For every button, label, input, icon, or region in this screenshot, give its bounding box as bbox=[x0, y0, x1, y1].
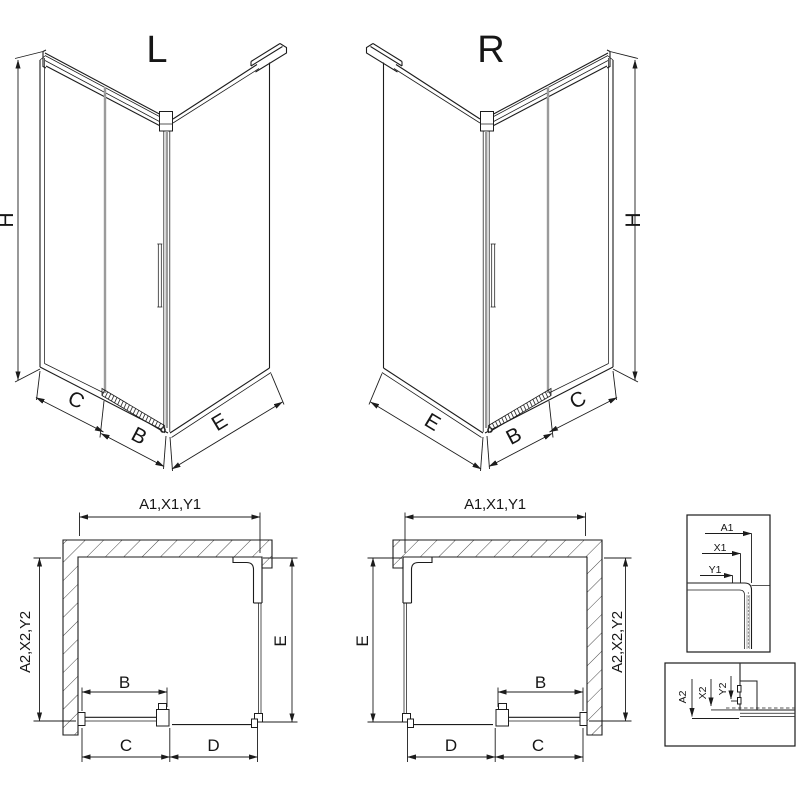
plan-left-dim-door: B bbox=[119, 673, 130, 692]
detail-floor-frame bbox=[665, 663, 795, 746]
plan-left-dim-side: A2,X2,Y2 bbox=[17, 611, 34, 673]
dim-label-e-right: E bbox=[420, 409, 444, 436]
plan-right-dim-top: A1,X1,Y1 bbox=[464, 496, 526, 513]
technical-drawing-page: L H C B E R H E B C A1,X1,Y1 A2,X2,Y2 E … bbox=[0, 0, 800, 800]
detail-dim-y1: Y1 bbox=[709, 564, 722, 576]
dim-label-e-left: E bbox=[208, 409, 232, 436]
detail-wall-profile: A1 X1 Y1 bbox=[687, 515, 770, 652]
dim-label-c-left: C bbox=[64, 387, 88, 414]
dim-label-h-left: H bbox=[0, 212, 18, 227]
wall-hatch-right-plan bbox=[393, 540, 602, 735]
iso-view-right: R H E B C bbox=[367, 29, 646, 471]
dim-label-b-right: B bbox=[502, 423, 525, 450]
detail-dim-x2: X2 bbox=[697, 686, 709, 699]
iso-right-title: R bbox=[477, 29, 504, 71]
plan-right-dim-d: D bbox=[445, 736, 457, 755]
detail-dim-x1: X1 bbox=[714, 542, 727, 554]
detail-dim-a2: A2 bbox=[677, 690, 689, 703]
plan-right-dim-depth: E bbox=[353, 635, 372, 646]
plan-right-dim-door: B bbox=[535, 673, 546, 692]
plan-right-dim-c: C bbox=[532, 736, 544, 755]
detail-floor-profile: A2 X2 Y2 bbox=[665, 663, 795, 746]
plan-left-dim-d: D bbox=[207, 736, 219, 755]
plan-view-right: A1,X1,Y1 A2,X2,Y2 E B D C bbox=[353, 496, 632, 762]
plan-view-left: A1,X1,Y1 A2,X2,Y2 E B C D bbox=[17, 496, 298, 762]
shower-enclosure-drawing: L H C B E R H E B C A1,X1,Y1 A2,X2,Y2 E … bbox=[0, 0, 800, 800]
iso-left-linework bbox=[15, 44, 287, 472]
detail-dim-y2: Y2 bbox=[717, 682, 729, 695]
plan-left-dim-depth: E bbox=[271, 635, 290, 646]
dim-label-b-left: B bbox=[127, 423, 150, 450]
plan-right-dim-side: A2,X2,Y2 bbox=[609, 611, 626, 673]
dim-label-c-right: C bbox=[566, 387, 590, 414]
iso-view-left: L H C B E bbox=[0, 29, 287, 471]
iso-right-linework bbox=[367, 44, 639, 472]
detail-dim-a1: A1 bbox=[721, 522, 734, 534]
iso-left-title: L bbox=[146, 29, 167, 71]
wall-hatch-left-plan bbox=[63, 540, 272, 735]
plan-left-dim-c: C bbox=[120, 736, 132, 755]
dim-label-h-right: H bbox=[622, 212, 645, 227]
plan-left-dim-top: A1,X1,Y1 bbox=[139, 496, 201, 513]
